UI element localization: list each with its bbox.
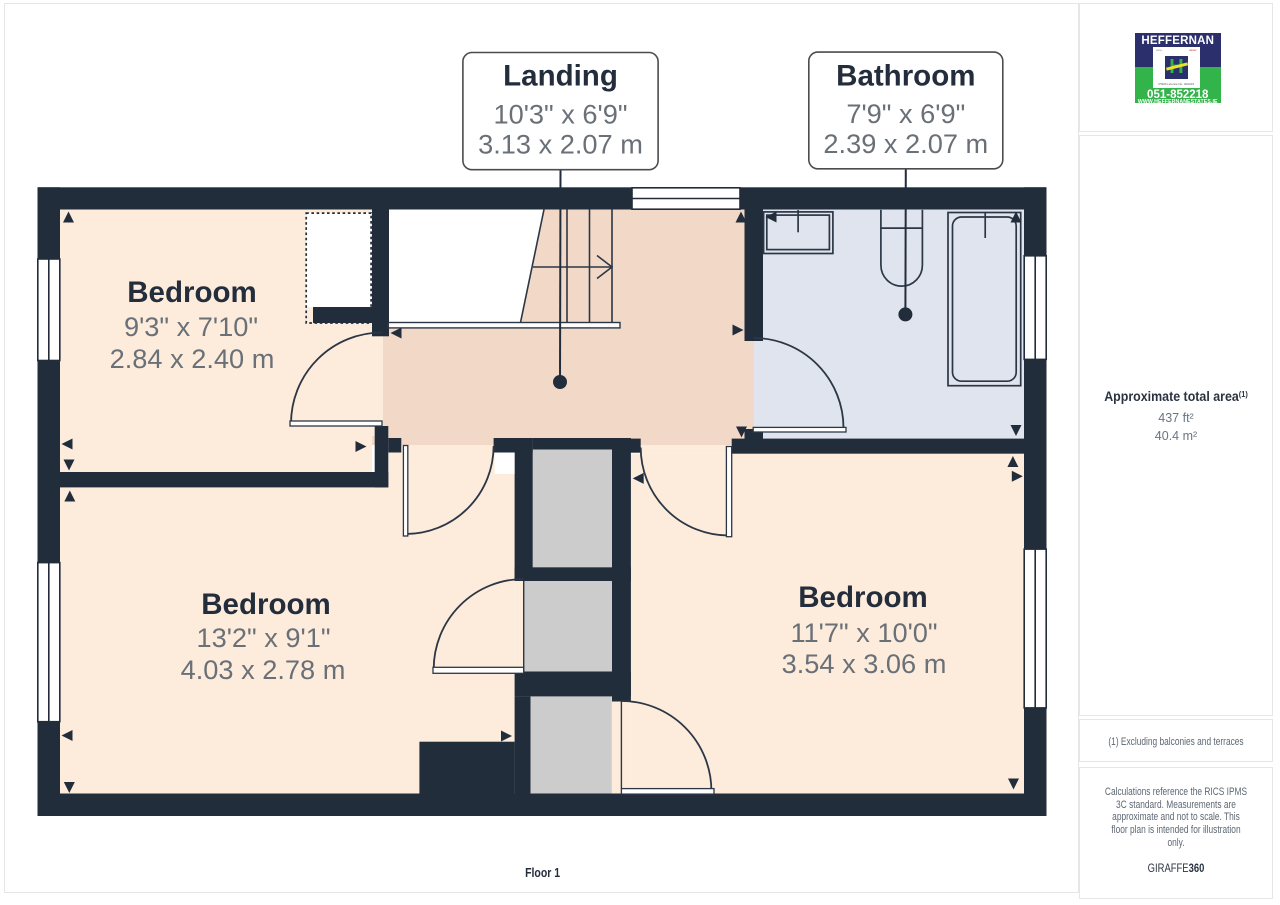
svg-text:9'3" x 7'10": 9'3" x 7'10" — [124, 311, 258, 342]
svg-text:3.54 x 3.06 m: 3.54 x 3.06 m — [782, 648, 947, 679]
svg-text:Bedroom: Bedroom — [201, 588, 330, 621]
svg-text:2.84 x 2.40 m: 2.84 x 2.40 m — [110, 343, 275, 374]
svg-text:3.13 x 2.07 m: 3.13 x 2.07 m — [478, 129, 643, 160]
svg-text:Bedroom: Bedroom — [127, 276, 256, 309]
svg-text:11'7" x 10'0": 11'7" x 10'0" — [790, 617, 937, 648]
svg-text:Bathroom: Bathroom — [836, 60, 975, 93]
svg-text:Floor 1: Floor 1 — [525, 865, 560, 880]
svg-text:7'9" x 6'9": 7'9" x 6'9" — [846, 98, 965, 129]
svg-text:13'2" x 9'1": 13'2" x 9'1" — [197, 622, 331, 653]
svg-text:4.03 x 2.78 m: 4.03 x 2.78 m — [181, 654, 346, 685]
svg-text:Bedroom: Bedroom — [798, 581, 927, 614]
svg-text:Landing: Landing — [503, 60, 618, 93]
svg-text:10'3" x 6'9": 10'3" x 6'9" — [494, 99, 628, 130]
svg-text:2.39 x 2.07 m: 2.39 x 2.07 m — [823, 128, 988, 159]
